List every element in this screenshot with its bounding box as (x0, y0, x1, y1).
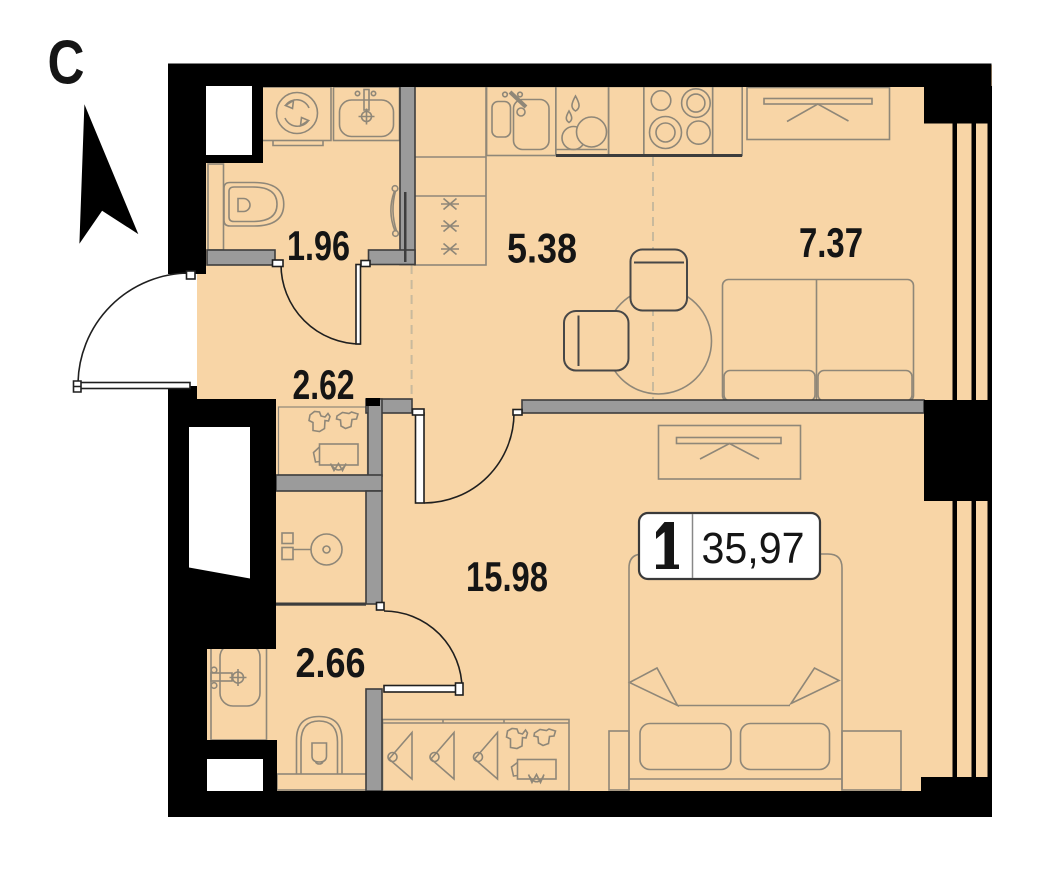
svg-text:15.98: 15.98 (466, 553, 548, 600)
svg-text:5.38: 5.38 (507, 225, 577, 272)
svg-text:35,97: 35,97 (702, 524, 805, 573)
svg-text:С: С (48, 29, 85, 98)
svg-text:1.96: 1.96 (287, 222, 350, 269)
svg-text:7.37: 7.37 (799, 219, 863, 266)
svg-text:2.66: 2.66 (296, 639, 366, 686)
svg-text:2.62: 2.62 (293, 361, 355, 408)
